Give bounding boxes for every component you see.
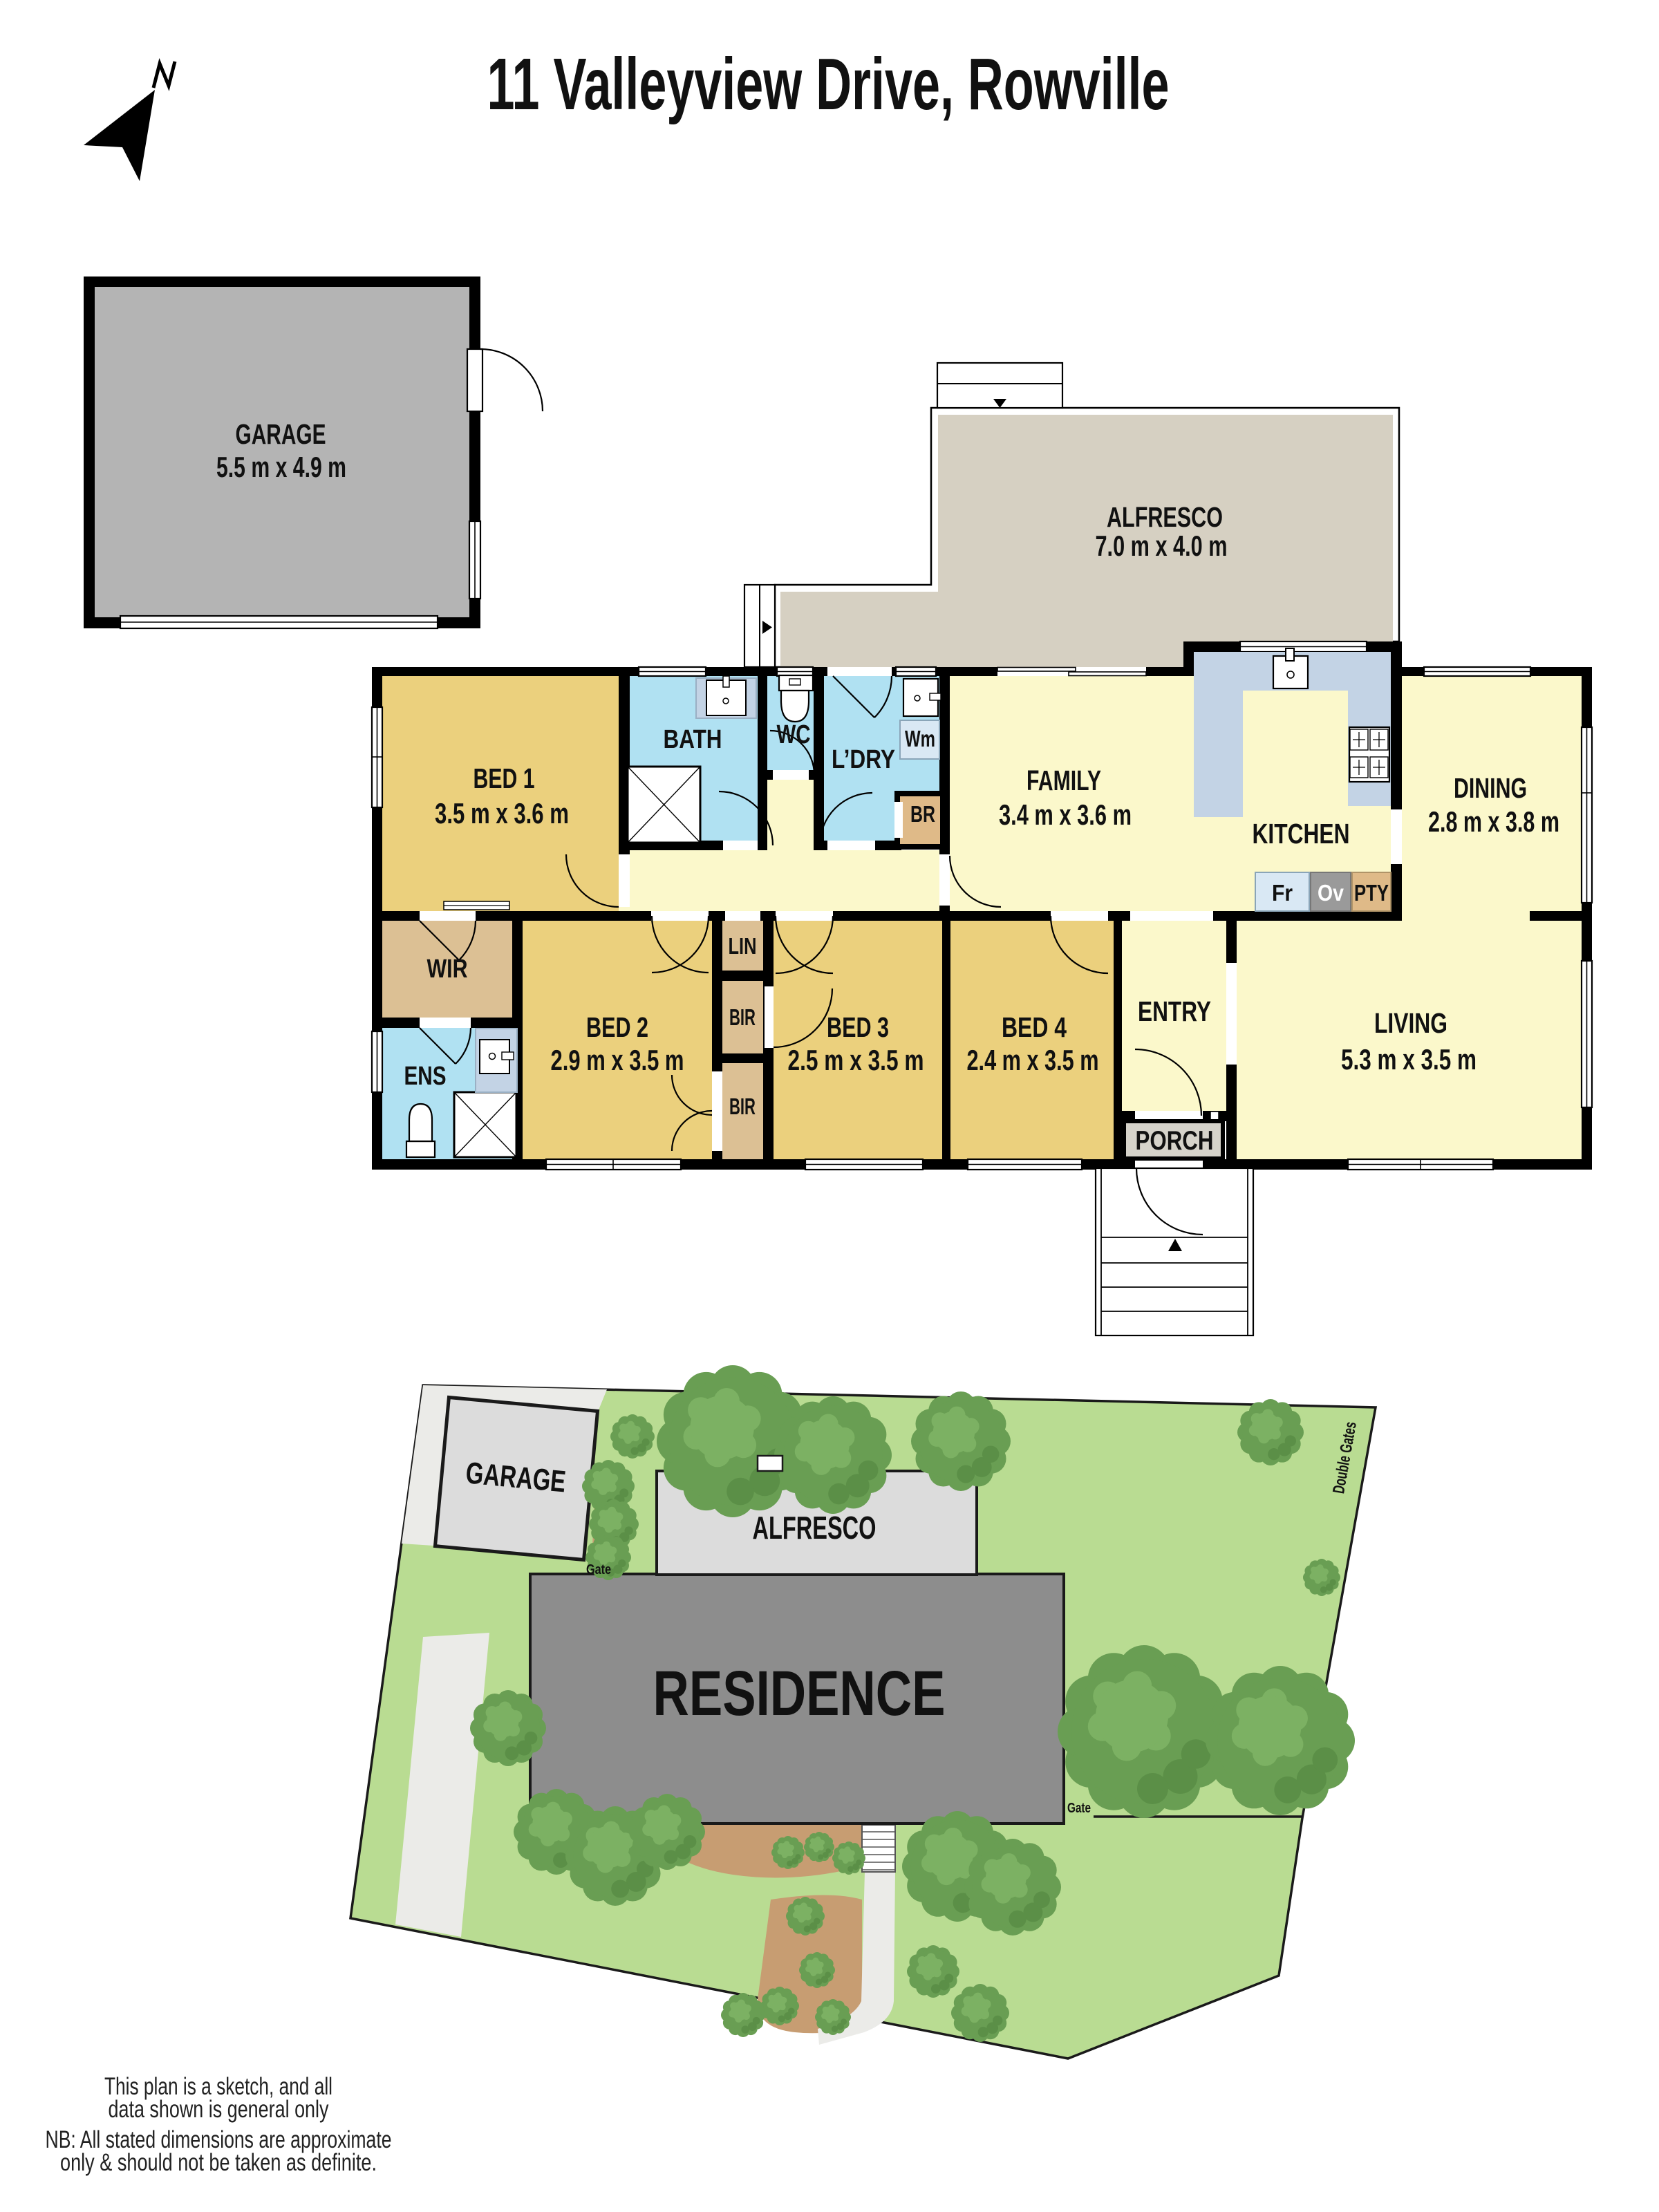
svg-text:ALFRESCO: ALFRESCO (753, 1510, 877, 1546)
svg-text:BED 4: BED 4 (1002, 1011, 1067, 1043)
svg-text:2.9 m x 3.5 m: 2.9 m x 3.5 m (551, 1044, 684, 1076)
svg-text:only & should not be taken as: only & should not be taken as definite. (60, 2149, 377, 2176)
svg-text:7.0 m x 4.0 m: 7.0 m x 4.0 m (1096, 529, 1228, 562)
svg-text:BED 2: BED 2 (586, 1011, 648, 1043)
svg-text:RESIDENCE: RESIDENCE (653, 1658, 946, 1729)
svg-text:3.5 m x 3.6 m: 3.5 m x 3.6 m (435, 797, 569, 829)
svg-text:WIR: WIR (427, 955, 468, 984)
svg-text:BR: BR (910, 801, 935, 827)
svg-text:DINING: DINING (1454, 772, 1527, 804)
svg-text:L’DRY: L’DRY (832, 745, 895, 774)
svg-text:Fr: Fr (1272, 880, 1293, 906)
svg-text:LIVING: LIVING (1374, 1007, 1447, 1039)
svg-text:BED 3: BED 3 (827, 1011, 889, 1043)
svg-text:ENS: ENS (404, 1062, 447, 1091)
svg-text:2.8 m x 3.8 m: 2.8 m x 3.8 m (1428, 805, 1559, 838)
svg-text:2.4 m x 3.5 m: 2.4 m x 3.5 m (967, 1044, 1099, 1076)
svg-text:PTY: PTY (1354, 880, 1389, 906)
svg-text:3.4 m x 3.6 m: 3.4 m x 3.6 m (999, 798, 1132, 831)
svg-text:5.3 m x 3.5 m: 5.3 m x 3.5 m (1341, 1043, 1477, 1076)
svg-text:BIR: BIR (729, 1004, 756, 1030)
svg-text:PORCH: PORCH (1136, 1126, 1214, 1156)
svg-text:11 Valleyview Drive, Rowville: 11 Valleyview Drive, Rowville (487, 44, 1170, 125)
svg-text:Ov: Ov (1318, 880, 1344, 906)
svg-text:Wm: Wm (905, 726, 935, 751)
svg-text:FAMILY: FAMILY (1027, 765, 1101, 796)
svg-text:Gate: Gate (1067, 1801, 1091, 1816)
svg-text:BATH: BATH (664, 725, 722, 754)
svg-text:2.5 m x 3.5 m: 2.5 m x 3.5 m (788, 1044, 924, 1076)
svg-text:KITCHEN: KITCHEN (1253, 818, 1350, 850)
svg-text:ALFRESCO: ALFRESCO (1107, 501, 1223, 533)
svg-text:data shown is general only: data shown is general only (109, 2096, 329, 2123)
svg-text:WC: WC (777, 720, 811, 749)
svg-text:LIN: LIN (729, 933, 757, 959)
svg-text:GARAGE: GARAGE (236, 418, 326, 450)
svg-text:BIR: BIR (729, 1094, 756, 1119)
svg-text:5.5 m x 4.9 m: 5.5 m x 4.9 m (216, 451, 346, 483)
svg-text:Gate: Gate (586, 1562, 611, 1577)
svg-text:ENTRY: ENTRY (1138, 995, 1211, 1027)
svg-text:BED 1: BED 1 (474, 762, 535, 794)
